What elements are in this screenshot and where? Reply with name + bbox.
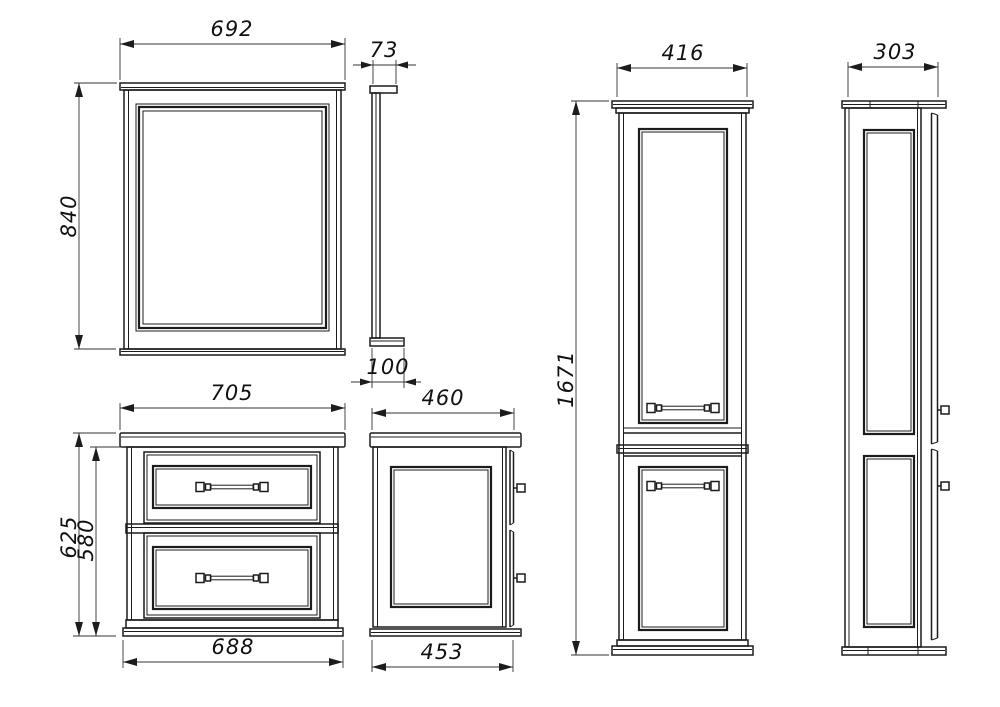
dimension-mirror-bottom-depth: 100	[351, 348, 421, 388]
dimension-mirror-top-depth: 73	[353, 38, 416, 84]
dimension-label: 453	[420, 640, 463, 664]
mirror-side-profile	[372, 93, 380, 338]
dimension-vanity-bottom-width: 688	[123, 635, 343, 668]
mirror-crown-molding	[120, 83, 345, 90]
vanity-side-countertop	[370, 433, 521, 447]
dimension-cabinet-width: 416	[617, 41, 747, 97]
side-knob	[938, 482, 950, 490]
cabinet-upper-door	[624, 129, 742, 433]
side-knob	[514, 574, 526, 582]
vanity-front-view	[120, 433, 345, 636]
side-knob	[514, 484, 526, 492]
side-knob	[938, 406, 950, 414]
door-handle	[647, 482, 719, 491]
dimension-label: 688	[211, 635, 254, 659]
cabinet-side-panel	[845, 108, 921, 647]
mirror-side-view	[370, 86, 404, 346]
drawing-svg: 692 840 73 100	[0, 0, 1000, 707]
cabinet-side-cap	[842, 101, 946, 108]
cabinet-mid-rail	[617, 445, 748, 453]
door-handle	[647, 404, 719, 413]
cabinet-plinth	[612, 640, 753, 655]
mirror-bottom-sill	[120, 349, 345, 355]
cabinet-crown-molding	[612, 101, 753, 113]
drawer-handle	[196, 574, 268, 583]
cabinet-lower-door	[624, 456, 742, 630]
vanity-side-plinth	[370, 629, 521, 636]
vanity-drawer-top	[144, 452, 320, 523]
tall-cabinet-side-view	[842, 101, 949, 655]
cabinet-side-plinth	[842, 647, 946, 655]
dimension-label: 840	[57, 194, 81, 237]
furniture-dimension-drawing: 692 840 73 100	[0, 0, 1000, 707]
vanity-side-view	[370, 433, 525, 636]
dimension-vanity-body-height: 580	[74, 447, 123, 636]
dimension-label: 100	[366, 355, 409, 379]
vanity-countertop	[120, 433, 345, 447]
dimension-label: 303	[873, 40, 916, 64]
vanity-side-panel	[373, 447, 506, 627]
dimension-label: 705	[210, 381, 253, 405]
vanity-drawer-bottom	[144, 533, 320, 618]
dimension-vanity-bottom-depth: 453	[372, 640, 513, 672]
tall-cabinet-front-view	[612, 101, 753, 655]
vanity-plinth	[123, 620, 343, 636]
dimension-vanity-top-width: 705	[120, 381, 345, 430]
cabinet-side-door-edge	[932, 113, 950, 640]
dimension-mirror-width: 692	[120, 17, 345, 80]
dimension-label: 580	[74, 518, 98, 561]
mirror-side-cap	[370, 86, 397, 93]
mirror-side-base	[370, 338, 404, 346]
dimension-vanity-top-depth: 460	[372, 386, 514, 430]
vanity-side-drawer-fronts	[510, 450, 525, 627]
dimension-label: 1671	[554, 350, 578, 407]
dimension-label: 460	[421, 386, 464, 410]
dimension-label: 416	[661, 41, 704, 65]
dimension-cabinet-height: 1671	[554, 101, 609, 655]
dimension-cabinet-depth: 303	[848, 40, 938, 97]
dimension-mirror-height: 840	[57, 83, 117, 349]
dimension-label: 73	[370, 38, 399, 62]
dimension-label: 692	[210, 17, 253, 41]
vanity-mid-rail	[126, 524, 338, 533]
mirror-frame	[124, 90, 341, 349]
drawer-handle	[196, 483, 268, 492]
mirror-front-view	[120, 83, 345, 355]
